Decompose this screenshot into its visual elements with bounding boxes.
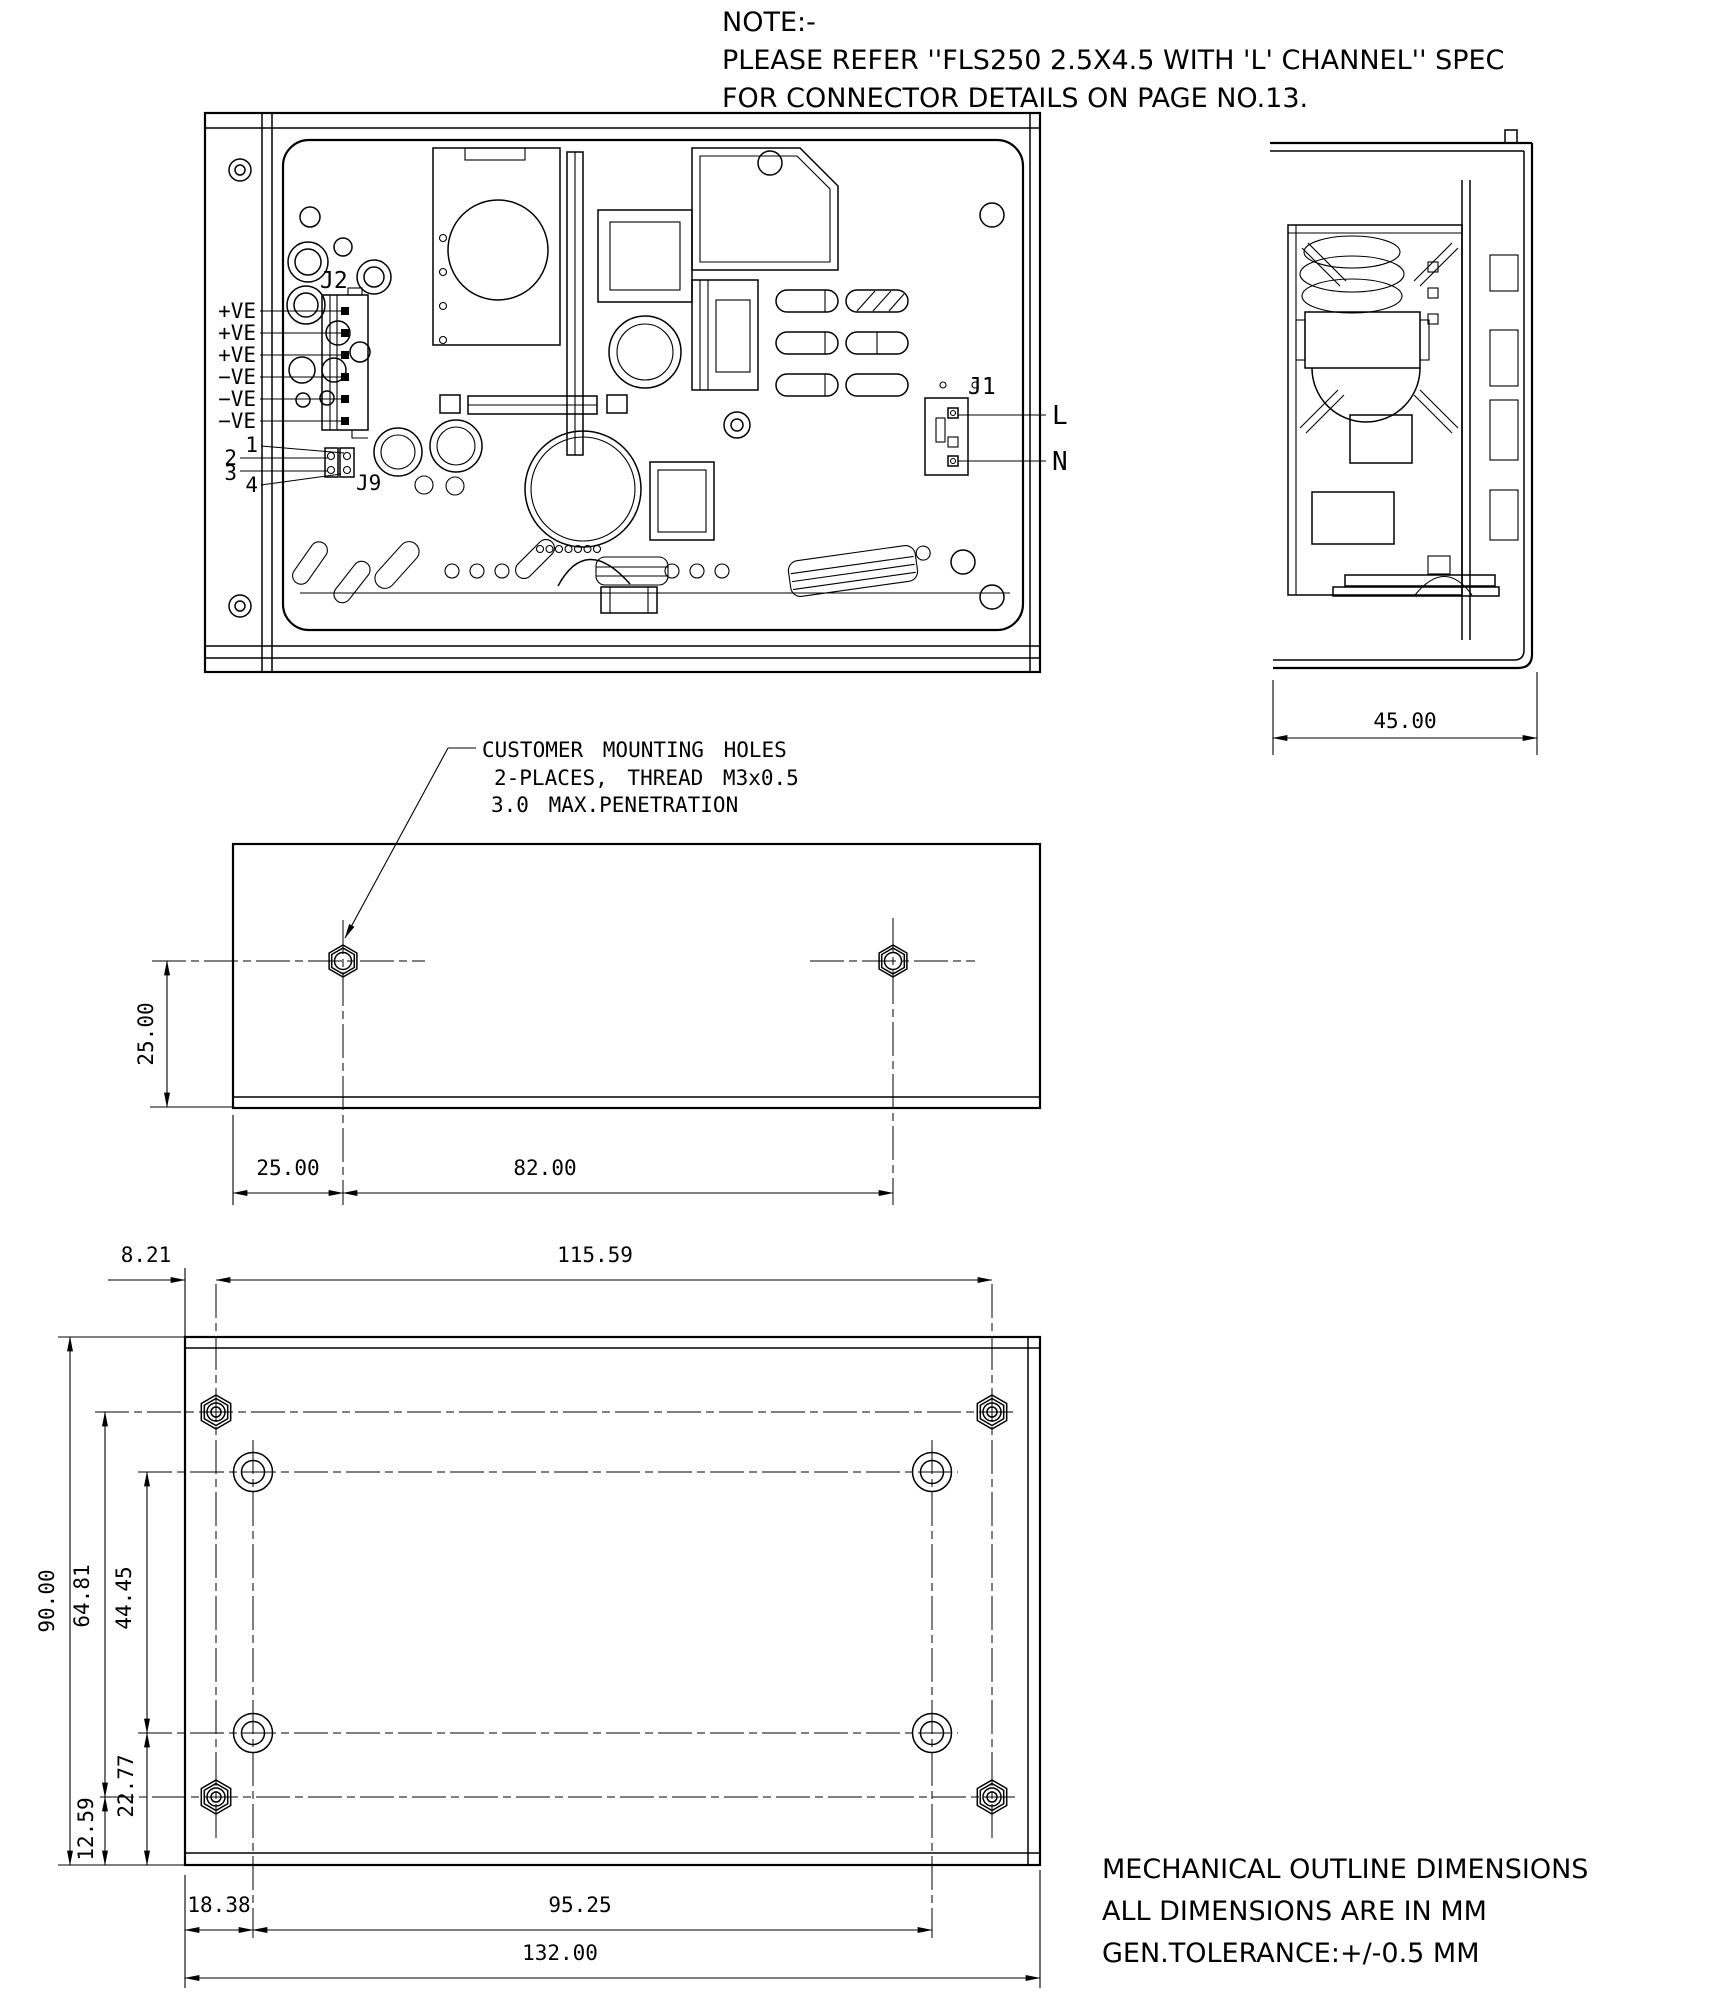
side-depth-dimension: 45.00 [1273, 672, 1537, 755]
terminal-bar [440, 395, 627, 414]
bottom-centerlines [95, 1284, 1015, 1938]
width-dim-text: 132.00 [522, 1941, 598, 1965]
callout-line1: CUSTOMER MOUNTING HOLES [482, 738, 787, 762]
braces [1300, 243, 1458, 433]
pin-number-3: 3 [224, 461, 237, 485]
din-tab [601, 587, 657, 613]
output-blocks [537, 462, 715, 553]
j2-pin [341, 329, 349, 337]
relay-block [692, 280, 758, 390]
j2-label: J2 [320, 268, 348, 294]
j1-label: J1 [968, 374, 996, 400]
mechanical-outline-drawing: NOTE:- PLEASE REFER ''FLS250 2.5X4.5 WIT… [0, 0, 1722, 2010]
callout-line2: 2-PLACES, THREAD M3x0.5 [494, 766, 799, 790]
neutral-label: N [1052, 447, 1068, 477]
mounting-view: CUSTOMER MOUNTING HOLES 2-PLACES, THREAD… [134, 738, 1040, 1205]
footer-block: MECHANICAL OUTLINE DIMENSIONS ALL DIMENS… [1102, 1854, 1588, 1969]
pin-label-4: −VE [218, 365, 256, 389]
hatched-capsule [846, 290, 908, 312]
footer-line3: GEN.TOLERANCE:+/-0.5 MM [1102, 1938, 1480, 1969]
pin-label-2: +VE [218, 321, 256, 345]
hole-offset-h-dim-text: 18.38 [187, 1893, 250, 1917]
pin-label-1: +VE [218, 299, 256, 323]
j2-pin [341, 307, 349, 315]
side-internals [1288, 180, 1518, 640]
j2-pin [341, 351, 349, 359]
flat-component [596, 557, 668, 585]
j2-pin [341, 417, 349, 425]
note-title: NOTE:- [722, 7, 816, 38]
pin-label-6: −VE [218, 409, 256, 433]
j9-label: J9 [356, 471, 381, 495]
top-view: J2 +VE +VE +VE −VE −VE −VE 1 [205, 113, 1068, 672]
solder-pads [445, 564, 729, 578]
stud-spacing-h-dim-text: 115.59 [557, 1243, 633, 1267]
j2-pin [341, 395, 349, 403]
inductor-cluster [287, 242, 391, 407]
transformer [433, 148, 560, 345]
pin-label-3: +VE [218, 343, 256, 367]
heatsink [567, 152, 583, 455]
bottom-view: 8.21 115.59 90.00 64.81 44.45 22.77 12.5… [35, 1243, 1040, 1988]
footer-line1: MECHANICAL OUTLINE DIMENSIONS [1102, 1854, 1588, 1885]
height-dim-text: 90.00 [35, 1569, 59, 1632]
hole-spacing-v-dim-text: 44.45 [112, 1566, 136, 1629]
bottom-outline [185, 1337, 1040, 1865]
input-transformer [692, 148, 838, 270]
pin-label-5: −VE [218, 387, 256, 411]
edge-to-hole-dim-text: 25.00 [134, 1002, 158, 1065]
live-label: L [1052, 401, 1068, 431]
pin-number-1: 1 [245, 433, 258, 457]
side-view: 45.00 [1270, 130, 1537, 755]
depth-dim-text: 45.00 [1373, 709, 1436, 733]
j2-connector: J2 [320, 268, 368, 438]
j1-connector: J1 L N [925, 374, 1068, 477]
note-line3: FOR CONNECTOR DETAILS ON PAGE NO.13. [722, 83, 1308, 114]
mounting-dimensions: 25.00 25.00 82.00 [134, 961, 893, 1205]
footer-line2: ALL DIMENSIONS ARE IN MM [1102, 1896, 1487, 1927]
pin-number-4: 4 [245, 473, 258, 497]
note-line2: PLEASE REFER ''FLS250 2.5X4.5 WITH 'L' C… [722, 45, 1504, 76]
striped-component [787, 542, 934, 598]
stud-bottom-dim-text: 12.59 [74, 1797, 98, 1860]
coil-windings [1300, 236, 1438, 324]
lip-dim-text: 8.21 [121, 1243, 172, 1267]
callout-line3: 3.0 MAX.PENETRATION [491, 793, 738, 817]
hole-offset-dim-text: 25.00 [256, 1156, 319, 1180]
stud-spacing-v-dim-text: 64.81 [70, 1564, 94, 1627]
j2-pin [341, 373, 349, 381]
screw-holes [229, 151, 1004, 617]
hole-bottom-dim-text: 22.77 [114, 1754, 138, 1817]
mounting-callout: CUSTOMER MOUNTING HOLES 2-PLACES, THREAD… [345, 738, 799, 938]
capsule-components [776, 290, 908, 396]
capacitors [374, 420, 641, 547]
hole-spacing-h-dim-text: 95.25 [548, 1893, 611, 1917]
note-block: NOTE:- PLEASE REFER ''FLS250 2.5X4.5 WIT… [722, 7, 1504, 114]
bridge-rectifier [598, 210, 692, 388]
hole-spacing-dim-text: 82.00 [513, 1156, 576, 1180]
j9-connector: 1 2 3 4 J9 [224, 433, 381, 497]
bottom-components [289, 536, 933, 613]
